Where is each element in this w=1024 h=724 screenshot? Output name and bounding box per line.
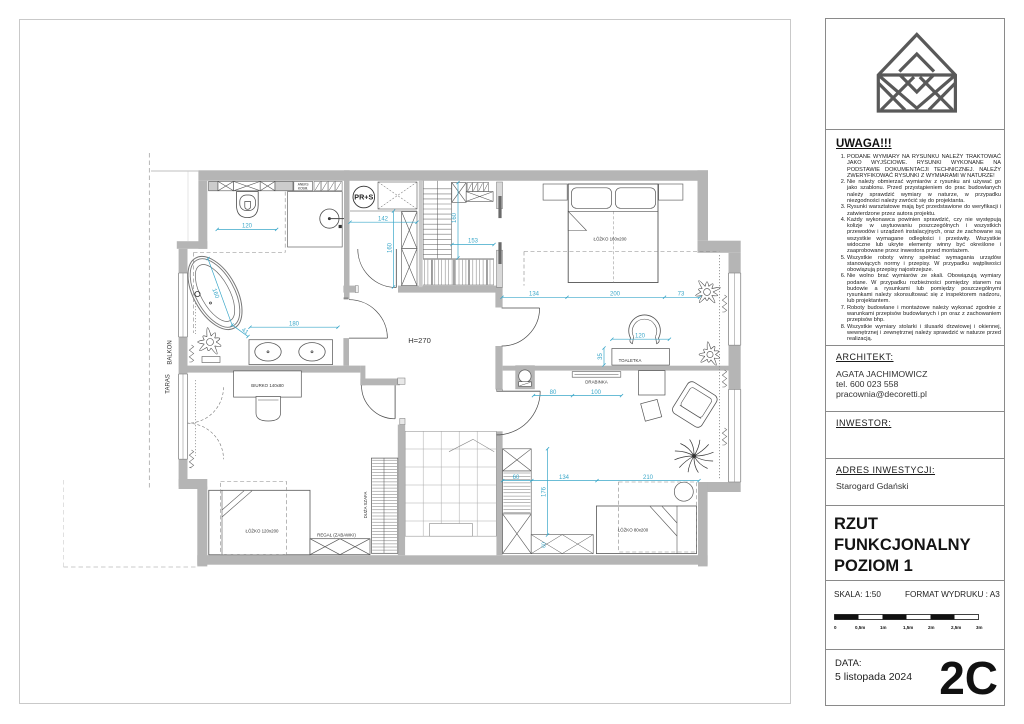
svg-text:3m: 3m	[976, 625, 983, 630]
svg-text:2m: 2m	[928, 625, 935, 630]
svg-text:TARAS: TARAS	[166, 374, 172, 394]
svg-text:ŁÓŻKO 120x200: ŁÓŻKO 120x200	[246, 529, 280, 534]
svg-text:BALKON: BALKON	[168, 340, 174, 364]
svg-text:120: 120	[242, 224, 253, 230]
svg-text:DRABINKA: DRABINKA	[585, 380, 608, 385]
svg-text:41: 41	[240, 327, 249, 336]
svg-text:73: 73	[678, 292, 685, 298]
svg-text:200: 200	[610, 292, 621, 298]
svg-text:35: 35	[598, 353, 604, 360]
svg-text:1,5m: 1,5m	[903, 625, 913, 630]
svg-text:210: 210	[643, 475, 654, 481]
svg-text:153: 153	[468, 239, 479, 245]
svg-text:160: 160	[452, 212, 458, 223]
svg-text:134: 134	[529, 292, 540, 298]
svg-text:TOALETKA: TOALETKA	[619, 358, 642, 363]
svg-text:100: 100	[591, 390, 602, 396]
svg-text:80: 80	[550, 390, 557, 396]
svg-text:176: 176	[542, 486, 548, 497]
svg-text:PR+S: PR+S	[354, 193, 373, 202]
svg-text:60: 60	[542, 542, 548, 548]
svg-text:180: 180	[289, 321, 300, 327]
svg-text:1m: 1m	[880, 625, 887, 630]
svg-text:DUŻA SZAFA: DUŻA SZAFA	[363, 492, 368, 519]
svg-text:0: 0	[834, 625, 837, 630]
svg-text:160: 160	[388, 242, 394, 253]
svg-text:ŁÓŻKO 80x200: ŁÓŻKO 80x200	[618, 528, 649, 533]
svg-text:ŁÓŻKO 160x200: ŁÓŻKO 160x200	[594, 237, 628, 242]
svg-text:142: 142	[378, 216, 389, 222]
svg-text:H=270: H=270	[408, 336, 431, 345]
svg-text:0,5m: 0,5m	[855, 625, 865, 630]
svg-text:KOSM.: KOSM.	[298, 186, 308, 190]
svg-text:134: 134	[559, 475, 570, 481]
svg-text:REGAŁ (ZABAWKI): REGAŁ (ZABAWKI)	[317, 533, 356, 538]
svg-text:2,5m: 2,5m	[951, 625, 961, 630]
svg-text:60: 60	[513, 475, 520, 481]
svg-text:BIURKO 140x80: BIURKO 140x80	[251, 383, 284, 388]
svg-text:120: 120	[635, 333, 646, 339]
